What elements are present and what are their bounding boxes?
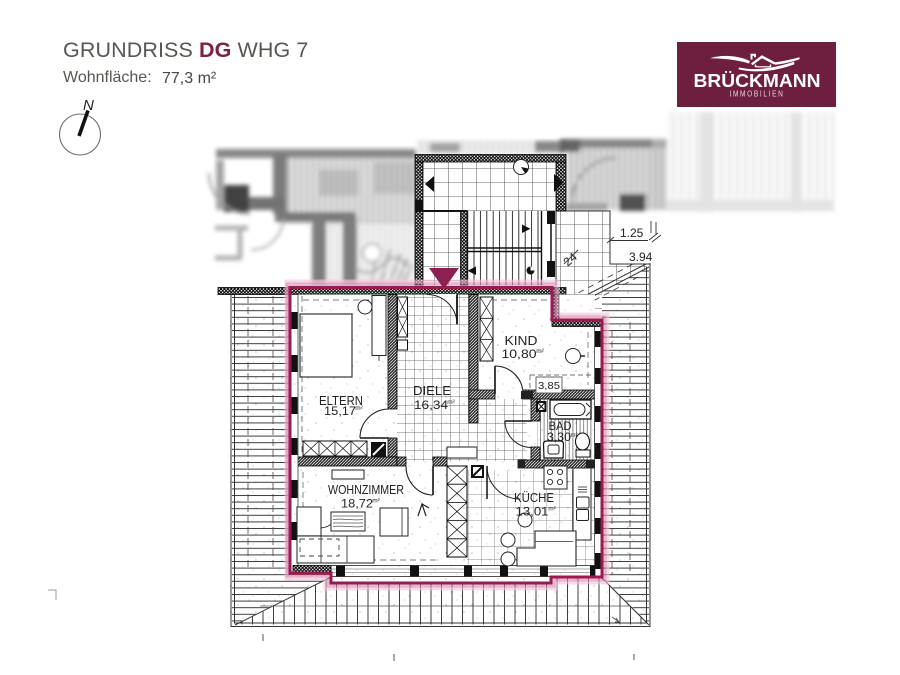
svg-text:18,72: 18,72 (341, 497, 373, 511)
svg-text:KÜCHE: KÜCHE (514, 490, 554, 505)
svg-text:m²: m² (372, 498, 380, 505)
svg-text:Wohnfläche:: Wohnfläche: (63, 69, 152, 86)
svg-text:m²: m² (536, 348, 544, 355)
svg-text:m²: m² (571, 433, 578, 439)
svg-text:m²: m² (447, 399, 455, 406)
svg-text:3,30: 3,30 (547, 432, 571, 444)
svg-text:m²: m² (548, 506, 556, 513)
svg-text:N: N (83, 97, 94, 114)
svg-text:m²: m² (355, 405, 363, 412)
svg-text:77,3 m²: 77,3 m² (162, 70, 217, 87)
svg-text:BAD: BAD (549, 419, 572, 433)
svg-text:15,17: 15,17 (324, 404, 356, 418)
svg-text:3,85: 3,85 (538, 380, 560, 392)
svg-text:1.25: 1.25 (620, 226, 644, 240)
svg-text:13,01: 13,01 (516, 505, 549, 519)
svg-text:WOHNZIMMER: WOHNZIMMER (328, 482, 404, 497)
svg-text:16,34: 16,34 (414, 398, 448, 412)
svg-text:3.94: 3.94 (629, 250, 653, 264)
svg-text:KIND: KIND (505, 333, 538, 348)
svg-text:BRÜCKMANN: BRÜCKMANN (694, 71, 821, 91)
svg-text:IMMOBILIEN: IMMOBILIEN (730, 90, 785, 99)
svg-text:10,80: 10,80 (502, 347, 537, 361)
svg-text:GRUNDRISS DG WHG 7: GRUNDRISS DG WHG 7 (63, 38, 308, 62)
svg-text:DIELE: DIELE (413, 383, 451, 398)
